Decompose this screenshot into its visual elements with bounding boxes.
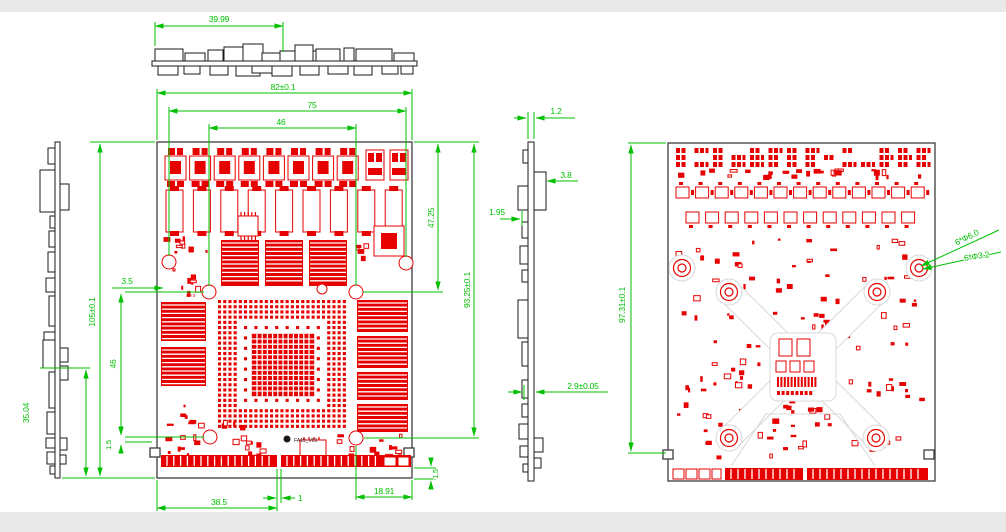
dim-bottom-right-label: 18.91 bbox=[374, 486, 395, 496]
manufacturer-logo-dot bbox=[284, 436, 291, 443]
top-margin-band bbox=[0, 0, 1006, 12]
dim-notch-label: 1 bbox=[298, 493, 303, 503]
center-component-cluster bbox=[770, 333, 836, 401]
front-view-pcb bbox=[150, 142, 414, 478]
drawing-canvas: 39.99 82±0.1 75 46 47.25 93.25±0.1 105±0… bbox=[0, 0, 1006, 532]
dim-inner-span-label: 46 bbox=[276, 117, 286, 127]
dim-hole-span-label: 75 bbox=[307, 100, 317, 110]
dim-right-total-label: 93.25±0.1 bbox=[462, 272, 472, 308]
dim-bottom-left-label: 38.5 bbox=[211, 497, 227, 507]
dim-top-comp-width-label: 39.99 bbox=[209, 14, 230, 24]
dim-left-span-label: 46 bbox=[108, 359, 118, 369]
dim-comp-offset-label: 1.95 bbox=[489, 207, 505, 217]
dim-board-width-label: 82±0.1 bbox=[271, 82, 296, 92]
pcb-mechanical-drawing: 39.99 82±0.1 75 46 47.25 93.25±0.1 105±0… bbox=[0, 0, 1006, 532]
dim-edge-offset-label: 3.5 bbox=[121, 276, 133, 286]
dim-back-height-label: 97.31±0.1 bbox=[617, 287, 627, 323]
profile-board bbox=[152, 61, 417, 66]
dim-total-thickness-label: 2.9±0.05 bbox=[567, 381, 599, 391]
refdes-label-b: OY2 bbox=[213, 455, 223, 460]
profile-board bbox=[55, 142, 60, 478]
dim-height-total-label: 105±0.1 bbox=[87, 297, 97, 327]
bottom-margin-band bbox=[0, 512, 1006, 532]
dim-right-small-label: 1.5 bbox=[431, 469, 440, 479]
board-version-label: FA19_V01 bbox=[294, 438, 318, 444]
refdes-label-a: OY3 bbox=[186, 293, 196, 298]
dim-comp-height-label: 3.8 bbox=[560, 170, 572, 180]
dim-profile-span-label: 35.04 bbox=[21, 402, 31, 423]
dim-left-small-label: 1.5 bbox=[104, 440, 113, 450]
profile-board bbox=[528, 142, 534, 481]
edge-connector bbox=[161, 455, 411, 467]
dim-right-upper-label: 47.25 bbox=[426, 207, 436, 228]
back-view-pcb bbox=[663, 143, 935, 481]
dim-pcb-thickness-label: 1.2 bbox=[550, 106, 562, 116]
